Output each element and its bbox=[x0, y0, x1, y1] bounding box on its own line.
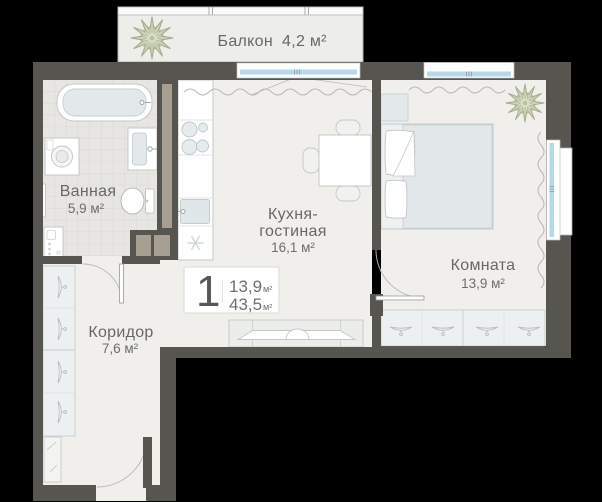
balcony-area-label: 4,2 м² bbox=[282, 33, 327, 50]
area-badge: 1 13,9 м² 43,5 м² bbox=[184, 267, 279, 316]
entrance-opening bbox=[96, 485, 146, 501]
electrical-panel-icon bbox=[44, 227, 63, 257]
pillow bbox=[385, 180, 407, 218]
bathroom-area: 5,9 м² bbox=[68, 201, 105, 216]
passage-floor bbox=[160, 260, 178, 347]
corridor-area: 7,6 м² bbox=[102, 341, 139, 356]
wall-corridor-right bbox=[160, 347, 176, 501]
dining-table-icon bbox=[319, 135, 371, 186]
badge-living-area-unit: м² bbox=[263, 284, 272, 294]
floor-plan: Балкон 4,2 м² bbox=[0, 0, 602, 502]
toilet-icon bbox=[121, 188, 154, 214]
bathroom-sink-icon bbox=[128, 128, 157, 170]
nightstand-icon bbox=[381, 94, 408, 121]
balcony-window bbox=[237, 63, 360, 78]
bedroom-top-window bbox=[424, 63, 514, 79]
balcony-name-label: Балкон bbox=[218, 33, 273, 50]
badge-total-area: 43,5 bbox=[229, 295, 262, 314]
kitchen-name-line1: Кухня- bbox=[268, 206, 318, 223]
bathtub-icon bbox=[57, 84, 152, 121]
corridor-wardrobe-icon bbox=[43, 266, 75, 436]
kitchen-area: 16,1 м² bbox=[271, 240, 315, 255]
kitchen-counter bbox=[178, 80, 213, 260]
kitchen-fixtures bbox=[178, 80, 213, 260]
corridor-name: Коридор bbox=[88, 324, 153, 341]
room-balcony: Балкон 4,2 м² bbox=[118, 7, 363, 62]
bathroom-door-opening bbox=[82, 256, 122, 264]
bathroom-name: Ванная bbox=[60, 183, 117, 200]
badge-total-area-unit: м² bbox=[263, 302, 272, 312]
vent-shaft bbox=[130, 230, 178, 260]
wall-left bbox=[33, 62, 43, 501]
bedroom-side-window bbox=[547, 140, 573, 240]
kitchen-name-line2: гостиная bbox=[259, 223, 326, 240]
bedroom-name: Комната bbox=[451, 257, 516, 274]
floor-plan-canvas: Балкон 4,2 м² bbox=[0, 0, 602, 502]
bedroom-wardrobe-icon bbox=[381, 310, 545, 346]
door-leaf bbox=[120, 264, 124, 303]
wall-bottom bbox=[160, 347, 571, 358]
duct-strip bbox=[162, 84, 172, 228]
wall-kitchen-bedroom-upper bbox=[372, 80, 381, 250]
door-leaf bbox=[376, 296, 424, 300]
washing-machine-icon bbox=[45, 138, 79, 175]
bedroom-area: 13,9 м² bbox=[461, 276, 505, 291]
bed-icon bbox=[381, 124, 493, 229]
sofa-icon bbox=[229, 320, 363, 347]
kitchen-sink-icon bbox=[179, 200, 210, 224]
door-leaf bbox=[143, 437, 152, 488]
balcony-railing bbox=[118, 7, 363, 15]
badge-rooms-count: 1 bbox=[196, 267, 220, 316]
badge-living-area: 13,9 bbox=[229, 277, 262, 296]
mirror-icon bbox=[44, 437, 61, 482]
